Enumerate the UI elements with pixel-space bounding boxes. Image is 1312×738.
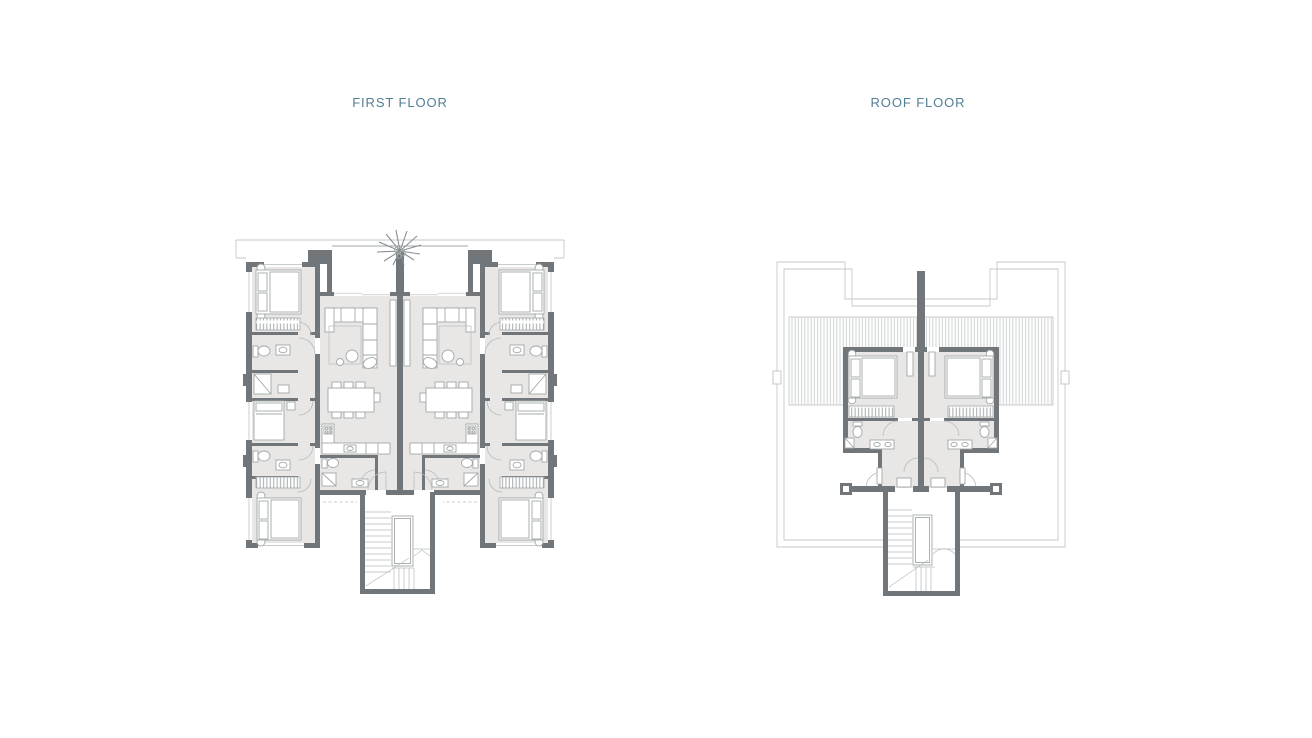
floor-plans-canvas: FIRST FLOOR ROOF FLOOR bbox=[0, 0, 1312, 738]
roof-staircase bbox=[883, 492, 960, 596]
party-wall-stub bbox=[917, 271, 925, 349]
floor-plan-drawing bbox=[0, 0, 1312, 738]
roof-floor-plan bbox=[773, 262, 1069, 596]
corner-bedroom-top bbox=[256, 264, 301, 330]
corner-bedroom-bottom bbox=[257, 492, 301, 546]
roof-bedroom bbox=[848, 350, 897, 417]
first-floor-plan bbox=[236, 230, 564, 594]
first-floor-staircase bbox=[360, 492, 435, 594]
